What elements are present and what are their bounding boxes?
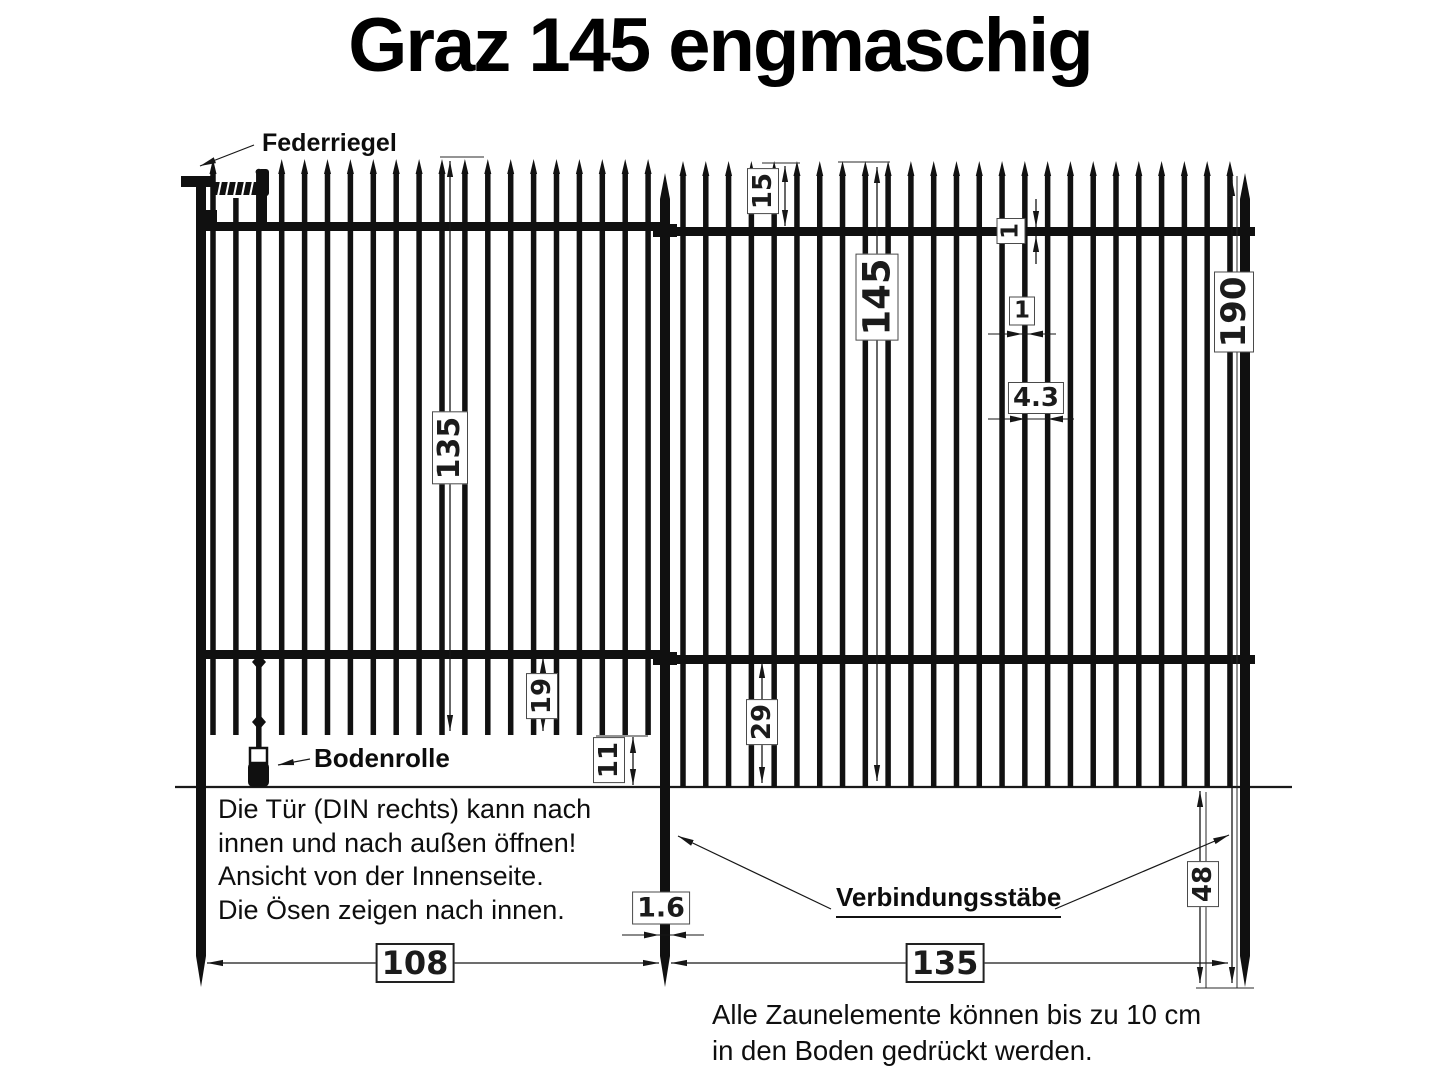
- door-note: Die Tür (DIN rechts) kann nach innen und…: [218, 793, 591, 927]
- door-note-line: Die Tür (DIN rechts) kann nach: [218, 793, 591, 827]
- ground-note-line: in den Boden gedrückt werden.: [712, 1033, 1201, 1069]
- dim-post-below-ground: 48: [1187, 861, 1219, 907]
- gate-top-rail: [198, 222, 662, 231]
- dim-bar-width: 1: [1009, 297, 1035, 326]
- bodenrolle-label: Bodenrolle: [314, 743, 450, 774]
- left-post: [196, 182, 206, 987]
- door-note-line: innen und nach außen öffnen!: [218, 827, 591, 861]
- spring-latch-icon: [181, 169, 269, 222]
- rail-clamp-bottom: [653, 652, 677, 665]
- dim-rail-thickness: 1: [997, 218, 1026, 244]
- dim-panel-bar-overhang: 29: [746, 699, 778, 745]
- fence-drawing: [0, 0, 1440, 1080]
- dim-bar-spacing: 4.3: [1008, 382, 1064, 414]
- dim-gate-width: 108: [376, 943, 455, 983]
- dim-tip-to-rail: 15: [747, 168, 779, 214]
- middle-post: [660, 173, 670, 987]
- dim-gate-bar-length: 135: [432, 412, 468, 485]
- dim-gate-bar-overhang: 19: [526, 673, 558, 719]
- gate-bottom-rail: [198, 650, 662, 659]
- hinge-eye-icon: [204, 210, 217, 222]
- federriegel-label: Federriegel: [262, 129, 397, 158]
- dim-panel-width: 135: [906, 943, 985, 983]
- fence-diagram: Graz 145 engmaschig: [0, 0, 1440, 1080]
- door-note-line: Ansicht von der Innenseite.: [218, 860, 591, 894]
- panel-bottom-rail: [658, 655, 1255, 664]
- verbindungsstaebe-label: Verbindungsstäbe: [836, 882, 1061, 918]
- gate-pickets: [210, 159, 652, 753]
- panel-top-rail: [658, 227, 1255, 236]
- dim-gate-ground-clearance: 11: [593, 737, 625, 783]
- dim-post-width: 1.6: [632, 892, 690, 925]
- door-note-line: Die Ösen zeigen nach innen.: [218, 894, 591, 928]
- dim-element-height: 145: [856, 253, 899, 340]
- ground-note: Alle Zaunelemente können bis zu 10 cm in…: [712, 997, 1201, 1069]
- dim-post-length: 190: [1214, 272, 1254, 353]
- rail-clamp-top: [653, 224, 677, 237]
- ground-note-line: Alle Zaunelemente können bis zu 10 cm: [712, 997, 1201, 1033]
